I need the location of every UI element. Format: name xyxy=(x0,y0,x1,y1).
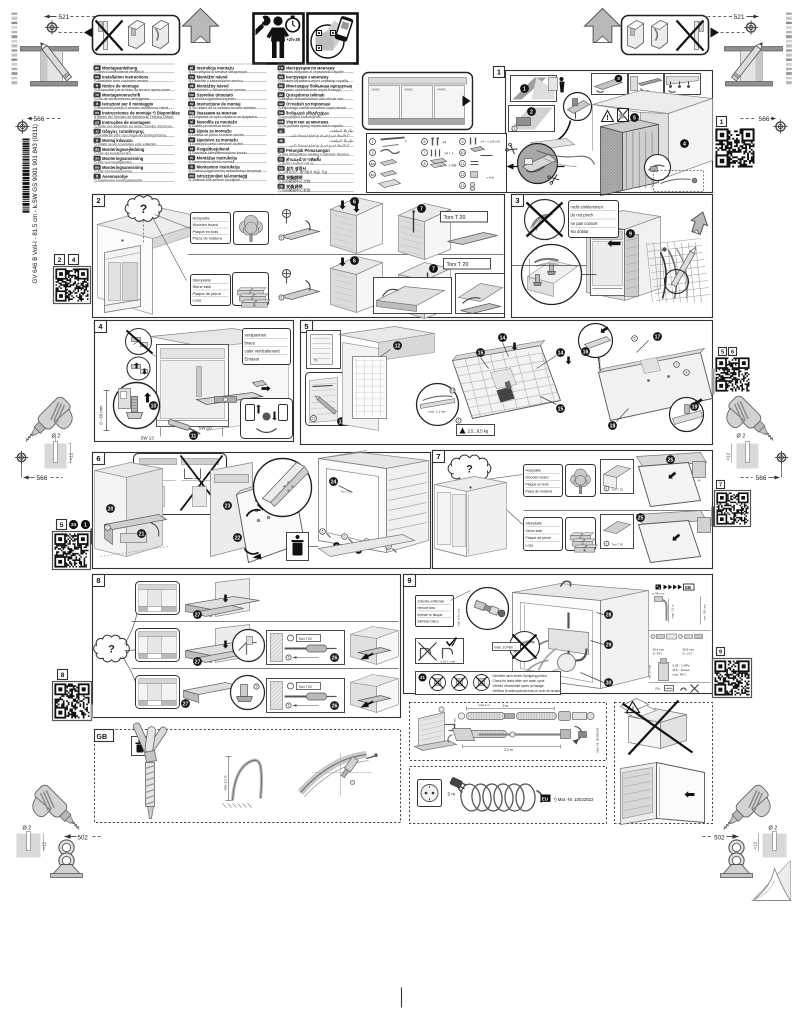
svg-text:x4 + 1: x4 + 1 xyxy=(445,152,454,156)
svg-text:22: 22 xyxy=(235,535,241,541)
svg-text:8: 8 xyxy=(61,672,65,679)
svg-text:1: 1 xyxy=(523,86,526,92)
svg-text:Steinplatte: Steinplatte xyxy=(526,522,543,526)
svg-text:≈12: ≈12 xyxy=(69,452,74,460)
svg-text:!: ! xyxy=(606,115,608,122)
svg-text:19: 19 xyxy=(692,404,698,410)
svg-text:45: 45 xyxy=(698,479,702,483)
svg-text:5: 5 xyxy=(256,685,258,689)
svg-text:6: 6 xyxy=(281,296,283,300)
svg-text:ø 38 mm: ø 38 mm xyxy=(653,592,665,596)
svg-text:GV 646 B Voll-I - 81,5 cm - k.: GV 646 B Voll-I - 81,5 cm - k.SW GS 9001… xyxy=(32,124,39,283)
svg-text:Plaque en bois: Plaque en bois xyxy=(193,229,219,234)
svg-text:27: 27 xyxy=(183,701,189,707)
svg-text:10: 10 xyxy=(151,403,157,409)
svg-text:4a: 4a xyxy=(371,162,375,166)
svg-text:30: 30 xyxy=(606,680,612,686)
svg-text:6: 6 xyxy=(288,656,290,660)
svg-text:5: 5 xyxy=(633,115,636,121)
svg-text:verspannen: verspannen xyxy=(245,332,268,337)
svg-text:5: 5 xyxy=(60,522,64,529)
svg-text:9: 9 xyxy=(407,576,411,585)
svg-text:27: 27 xyxy=(195,612,201,618)
svg-text:25: 25 xyxy=(638,515,644,521)
svg-text:Torx T 20: Torx T 20 xyxy=(447,262,469,268)
svg-text:15: 15 xyxy=(558,406,564,412)
svg-text:brace: brace xyxy=(245,340,256,345)
svg-text:Dichtheit nach einem Spülgang: Dichtheit nach einem Spülgang prüfen. xyxy=(493,674,548,678)
svg-text:FI=: FI= xyxy=(656,687,661,691)
svg-text:1: 1 xyxy=(84,522,87,528)
svg-text:18: 18 xyxy=(610,423,616,429)
svg-text:No doblar: No doblar xyxy=(571,229,590,234)
svg-text:7: 7 xyxy=(676,363,678,367)
svg-text:≥ 10 l / min: ≥ 10 l / min xyxy=(441,660,456,664)
svg-text:566: 566 xyxy=(759,116,770,123)
svg-text:3: 3 xyxy=(617,76,620,81)
svg-text:1: 1 xyxy=(720,119,724,126)
svg-text:≈12: ≈12 xyxy=(753,841,758,849)
svg-text:max 1 m: max 1 m xyxy=(479,703,491,707)
svg-text:9: 9 xyxy=(629,231,632,237)
svg-text:Losa: Losa xyxy=(526,543,534,547)
svg-text:GB: GB xyxy=(97,734,108,741)
svg-text:521: 521 xyxy=(734,14,745,21)
svg-text:566: 566 xyxy=(34,116,45,123)
svg-text:max. ø 16 mm: max. ø 16 mm xyxy=(457,608,461,627)
svg-text:x 4x8: x 4x8 xyxy=(487,176,495,180)
svg-text:31: 31 xyxy=(420,675,425,680)
svg-text:6: 6 xyxy=(731,349,734,355)
svg-text:Wooden board: Wooden board xyxy=(193,222,218,227)
svg-text:*) Jinkiseb mis-servizz tal-kl: *) Jinkiseb mis-servizz tal-klijenti xyxy=(189,178,241,182)
svg-text:do not pinch: do not pinch xyxy=(571,213,594,218)
svg-text:max. 1,2 mm: max. 1,2 mm xyxy=(429,410,447,414)
svg-text:Steinplatte: Steinplatte xyxy=(193,277,211,282)
svg-text:2,5...8,5 kg: 2,5...8,5 kg xyxy=(468,429,489,434)
svg-text:Ø 2: Ø 2 xyxy=(23,826,32,832)
svg-text:14: 14 xyxy=(500,335,506,341)
svg-text:7: 7 xyxy=(432,266,435,272)
svg-text:1: 1 xyxy=(514,127,516,131)
svg-text:Placa de madera: Placa de madera xyxy=(193,236,223,241)
svg-text:521: 521 xyxy=(59,14,70,21)
svg-text:nicht einklemmen: nicht einklemmen xyxy=(571,204,604,209)
svg-text:Plaque de pierre: Plaque de pierre xyxy=(193,291,222,296)
svg-text:Holzplatte: Holzplatte xyxy=(526,469,542,473)
svg-text:Torx T 20: Torx T 20 xyxy=(612,543,624,547)
svg-text:3: 3 xyxy=(515,196,519,205)
svg-text:4: 4 xyxy=(72,257,76,264)
svg-text:12: 12 xyxy=(395,343,401,349)
svg-text:ںيكرتلا تاميلعت: ںيكرتلا تاميلعت xyxy=(329,138,354,143)
svg-text:502: 502 xyxy=(714,834,725,841)
svg-text:?: ? xyxy=(140,202,147,216)
svg-text:ø 65 mm: ø 65 mm xyxy=(453,718,457,728)
svg-text:26: 26 xyxy=(332,655,338,661)
svg-text:max. 10 Nm: max. 10 Nm xyxy=(495,646,513,650)
svg-text:max 1,1 m: max 1,1 m xyxy=(224,775,228,790)
svg-text:Mat.-Nr. 00350564: Mat.-Nr. 00350564 xyxy=(596,727,600,752)
svg-text:24: 24 xyxy=(331,479,337,485)
svg-text:8: 8 xyxy=(96,576,100,585)
svg-text:6: 6 xyxy=(634,337,636,341)
svg-text:Enrasar: Enrasar xyxy=(245,356,260,361)
svg-text:6: 6 xyxy=(424,140,426,144)
svg-text:ءالمعلا ةمدخ قيرط نع اهيلع لوص: ءالمعلا ةمدخ قيرط نع اهيلع لوصحلا نكمي (… xyxy=(289,143,350,147)
svg-text:5: 5 xyxy=(304,322,308,331)
svg-text:Torx T20: Torx T20 xyxy=(299,685,312,689)
svg-text:4: 4 xyxy=(683,141,686,147)
svg-text:(0,5 - 10 bar): (0,5 - 10 bar) xyxy=(673,668,690,672)
svg-text:21: 21 xyxy=(139,531,145,537)
svg-text:5: 5 xyxy=(721,349,724,355)
svg-text:Torx T20: Torx T20 xyxy=(598,358,602,369)
svg-text:Plaque en bois: Plaque en bois xyxy=(526,483,549,487)
svg-text:29: 29 xyxy=(606,642,612,648)
svg-text:Check for leaks after one wash: Check for leaks after one wash cycle. xyxy=(493,679,546,683)
svg-text:9: 9 xyxy=(462,140,464,144)
svg-text:*) 可向客服中心索取: *) 可向客服中心索取 xyxy=(278,188,311,193)
svg-text:17: 17 xyxy=(655,334,661,340)
svg-text:Losa: Losa xyxy=(193,298,202,303)
svg-text:14: 14 xyxy=(558,350,564,356)
svg-text:1: 1 xyxy=(372,140,374,144)
svg-text:14: 14 xyxy=(451,389,455,393)
svg-text:Stone slab: Stone slab xyxy=(526,529,543,533)
svg-text:7: 7 xyxy=(719,482,722,488)
svg-text:7: 7 xyxy=(424,151,426,155)
svg-text:13: 13 xyxy=(461,184,465,188)
svg-text:Eliminar Disco: Eliminar Disco xyxy=(418,620,439,624)
svg-text:502: 502 xyxy=(78,834,89,841)
svg-text:SW 13: SW 13 xyxy=(141,436,155,441)
svg-text:75: 75 xyxy=(314,359,318,363)
svg-text:max. 60°C: max. 60°C xyxy=(673,673,688,677)
svg-text:Torx T 20: Torx T 20 xyxy=(444,215,466,221)
svg-text:11: 11 xyxy=(191,433,197,439)
svg-text:6: 6 xyxy=(353,258,356,264)
svg-text:2: 2 xyxy=(107,526,109,530)
svg-text:x 4x8: x 4x8 xyxy=(449,164,457,168)
svg-text:Ø 2: Ø 2 xyxy=(769,826,778,832)
svg-text:5 m: 5 m xyxy=(448,792,456,797)
svg-text:7: 7 xyxy=(420,206,423,212)
svg-text:1: 1 xyxy=(497,68,501,77)
svg-text:6: 6 xyxy=(344,535,346,539)
svg-text:8: 8 xyxy=(686,371,688,375)
svg-text:x4: x4 xyxy=(443,141,447,145)
svg-text:Torx T 20: Torx T 20 xyxy=(612,488,624,492)
svg-text:GB: GB xyxy=(685,585,691,590)
svg-text:x4 + 1 tx/8 x15: x4 + 1 tx/8 x15 xyxy=(481,140,501,144)
svg-text:*) Mat.-Nr. 10022522: *) Mat.-Nr. 10022522 xyxy=(554,797,594,802)
svg-text:Placa de madera: Placa de madera xyxy=(526,490,553,494)
svg-text:8: 8 xyxy=(424,162,426,166)
svg-text:Stone slab: Stone slab xyxy=(193,284,211,289)
svg-text:Holzplatte: Holzplatte xyxy=(193,215,210,220)
svg-text:2 m: 2 m xyxy=(503,704,509,708)
svg-text:EU: EU xyxy=(542,797,548,802)
svg-text:20: 20 xyxy=(108,506,114,512)
svg-text:Plaque de pierre: Plaque de pierre xyxy=(526,536,552,540)
svg-text:Wooden board: Wooden board xyxy=(526,476,549,480)
svg-text:16: 16 xyxy=(583,349,589,355)
svg-text:2,2 m: 2,2 m xyxy=(504,748,513,752)
svg-text:ar: ar xyxy=(279,129,283,133)
svg-text:15: 15 xyxy=(478,350,484,356)
svg-text:3: 3 xyxy=(372,151,374,155)
svg-text:2: 2 xyxy=(96,196,100,205)
svg-text:(G 1/2"): (G 1/2") xyxy=(683,652,693,656)
svg-text:28: 28 xyxy=(606,612,612,618)
svg-text:6: 6 xyxy=(281,236,283,240)
svg-text:?: ? xyxy=(108,643,115,655)
svg-text:remove disc: remove disc xyxy=(418,606,436,610)
svg-text:23: 23 xyxy=(225,503,231,509)
svg-text:max. 1,5 m: max. 1,5 m xyxy=(671,604,675,619)
svg-text:Torx T20: Torx T20 xyxy=(341,490,352,494)
svg-text:*) Saatavana huoltopalvelusta: *) Saatavana huoltopalvelusta xyxy=(94,179,142,183)
svg-text:?: ? xyxy=(466,463,473,475)
svg-text:≈12: ≈12 xyxy=(726,452,731,460)
svg-text:0 - 60 mm: 0 - 60 mm xyxy=(99,405,104,424)
svg-text:26: 26 xyxy=(332,703,338,709)
svg-text:(G 3/4"): (G 3/4") xyxy=(653,652,663,656)
svg-text:Ø 2: Ø 2 xyxy=(737,434,746,440)
svg-text:2: 2 xyxy=(530,109,533,115)
svg-text:0,05 - 1 MPa: 0,05 - 1 MPa xyxy=(673,664,691,668)
svg-text:min. 10 mm: min. 10 mm xyxy=(648,665,652,679)
svg-text:566: 566 xyxy=(756,475,767,482)
svg-text:ءالمعلا ةمدخ قيرط نع اهيلع لوص: ءالمعلا ةمدخ قيرط نع اهيلع لوصحلا نكمي (… xyxy=(289,134,350,138)
svg-text:+2h-3h: +2h-3h xyxy=(286,37,300,42)
svg-text:13: 13 xyxy=(312,417,316,421)
svg-text:2: 2 xyxy=(58,257,62,264)
svg-text:566: 566 xyxy=(37,475,48,482)
svg-text:12: 12 xyxy=(461,173,465,177)
svg-text:min. 700 mm: min. 700 mm xyxy=(703,604,707,621)
svg-text:10: 10 xyxy=(461,151,465,155)
svg-text:ںيكرتلا تاميلعت: ںيكرتلا تاميلعت xyxy=(329,128,354,133)
svg-text:4b: 4b xyxy=(371,173,375,177)
svg-text:6: 6 xyxy=(458,419,460,423)
svg-text:24: 24 xyxy=(71,522,77,527)
svg-text:+ 4xT: + 4xT xyxy=(437,164,445,168)
svg-text:caler verticalement: caler verticalement xyxy=(245,348,281,353)
svg-text:Scheibe entfernen: Scheibe entfernen xyxy=(418,599,445,603)
svg-text:Verificar la estanqueidad tras: Verificar la estanqueidad tras un ciclo … xyxy=(493,689,562,693)
svg-text:Vérifiez l’étanchéité après un: Vérifiez l’étanchéité après un lavage. xyxy=(493,684,545,688)
svg-text:25: 25 xyxy=(668,457,674,463)
svg-text:6: 6 xyxy=(288,704,290,708)
svg-text:Torx T20: Torx T20 xyxy=(299,637,312,641)
svg-text:27: 27 xyxy=(195,659,201,665)
svg-text:≈12: ≈12 xyxy=(42,841,47,849)
svg-text:11: 11 xyxy=(461,162,465,166)
svg-text:SW 10: SW 10 xyxy=(199,426,213,431)
svg-text:7: 7 xyxy=(436,452,440,461)
svg-text:Ø 2: Ø 2 xyxy=(52,434,61,440)
svg-text:ne pas coincer: ne pas coincer xyxy=(571,221,599,226)
svg-text:enlever le disque: enlever le disque xyxy=(418,613,443,617)
svg-text:6: 6 xyxy=(96,454,100,463)
svg-text:5: 5 xyxy=(322,530,324,534)
svg-text:9: 9 xyxy=(719,649,722,655)
